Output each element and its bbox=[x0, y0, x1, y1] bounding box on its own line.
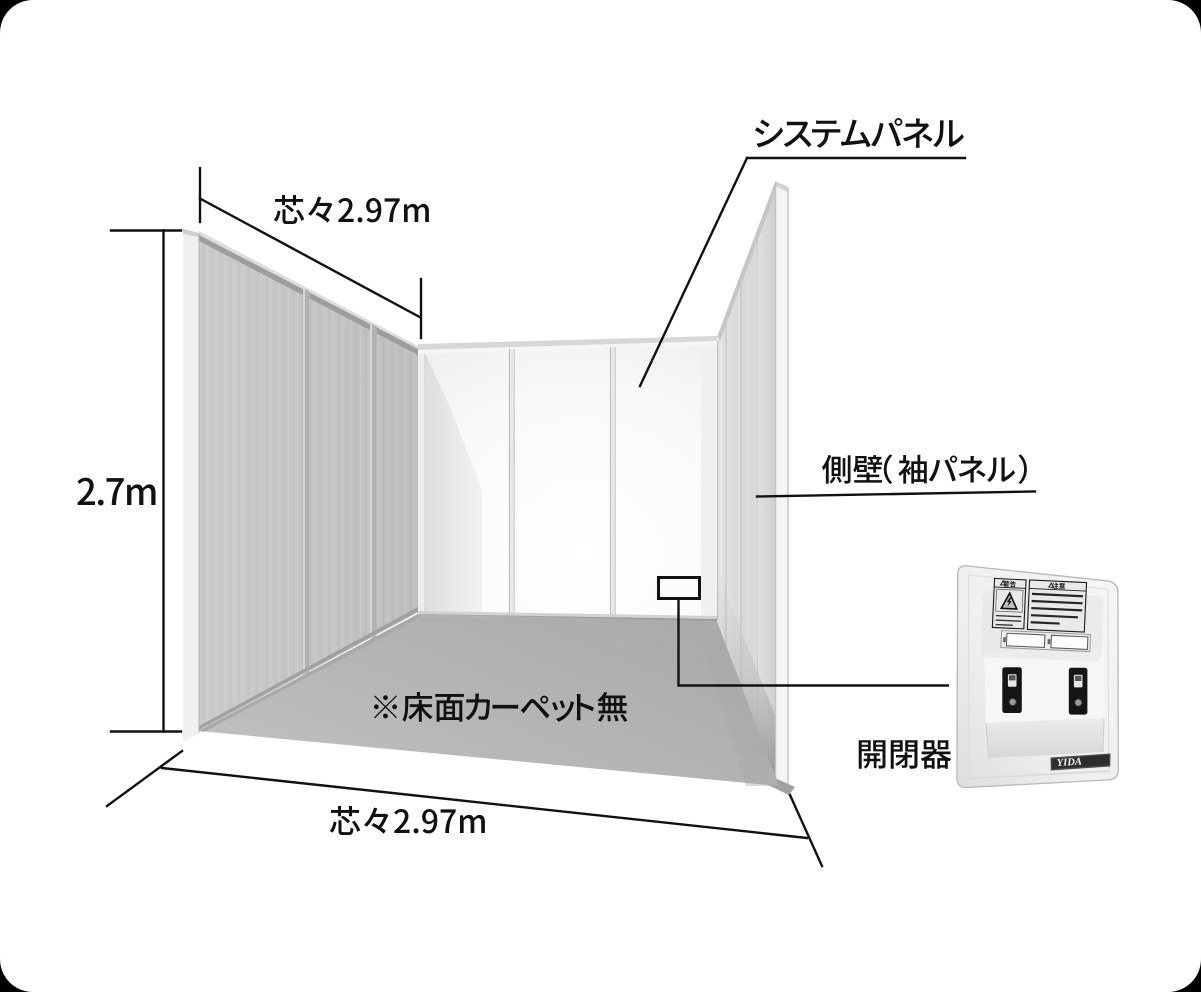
svg-text:YIDA: YIDA bbox=[1057, 756, 1083, 769]
